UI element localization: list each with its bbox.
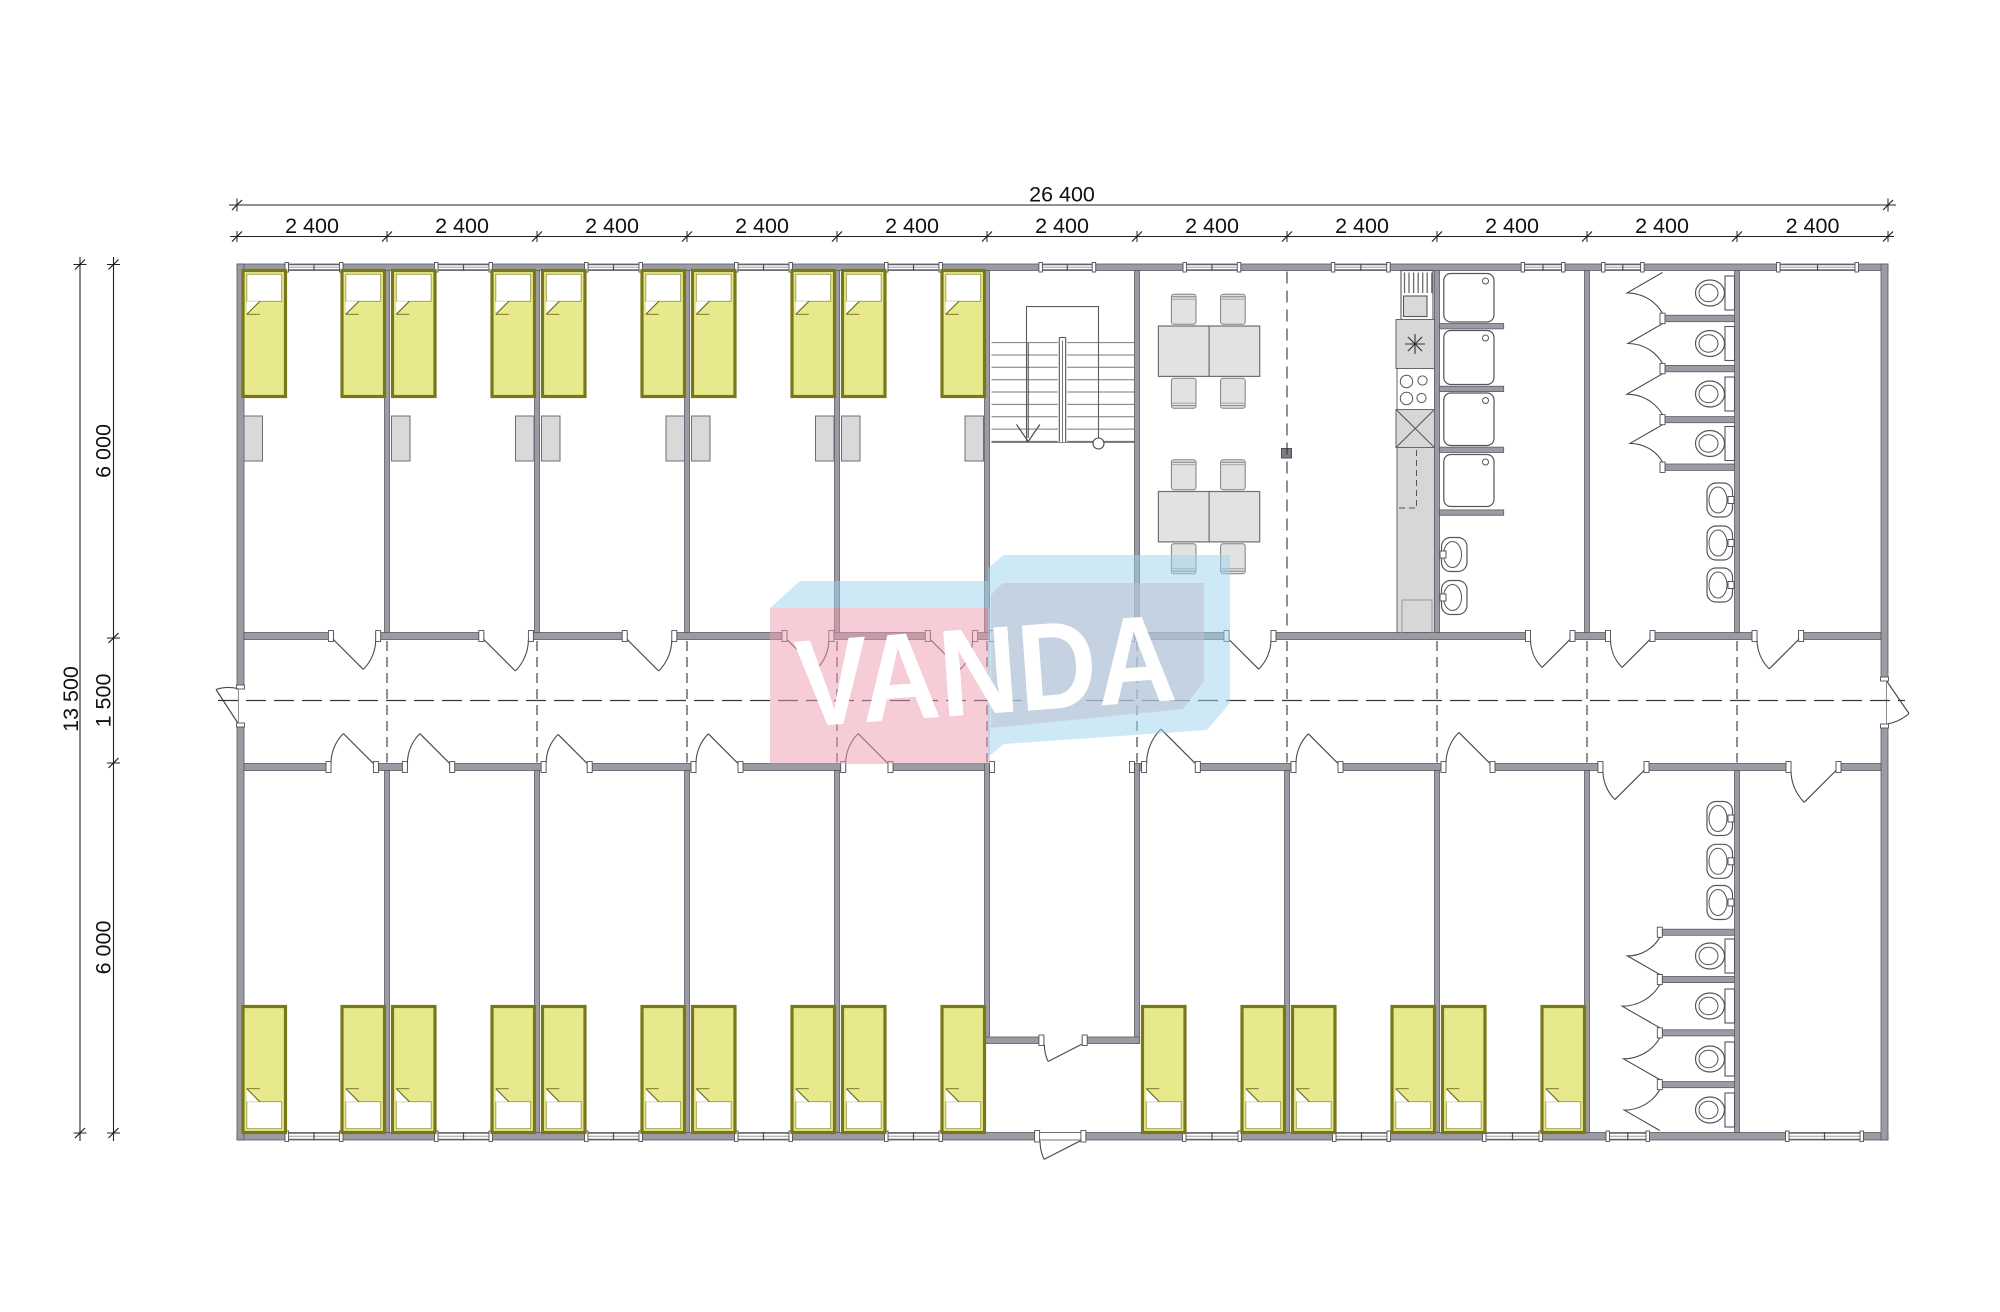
svg-text:26 400: 26 400 xyxy=(1029,183,1095,207)
svg-text:2 400: 2 400 xyxy=(1485,214,1539,238)
svg-text:2 400: 2 400 xyxy=(885,214,939,238)
svg-text:1 500: 1 500 xyxy=(92,674,116,728)
svg-text:VANDA: VANDA xyxy=(791,588,1180,754)
svg-text:2 400: 2 400 xyxy=(1185,214,1239,238)
svg-text:2 400: 2 400 xyxy=(1035,214,1089,238)
svg-text:2 400: 2 400 xyxy=(1335,214,1389,238)
svg-text:2 400: 2 400 xyxy=(1635,214,1689,238)
svg-text:2 400: 2 400 xyxy=(1786,214,1840,238)
svg-text:2 400: 2 400 xyxy=(435,214,489,238)
svg-text:2 400: 2 400 xyxy=(735,214,789,238)
svg-text:2 400: 2 400 xyxy=(285,214,339,238)
svg-text:13 500: 13 500 xyxy=(59,666,83,732)
svg-text:2 400: 2 400 xyxy=(585,214,639,238)
svg-text:6 000: 6 000 xyxy=(92,921,116,975)
svg-text:6 000: 6 000 xyxy=(92,424,116,478)
